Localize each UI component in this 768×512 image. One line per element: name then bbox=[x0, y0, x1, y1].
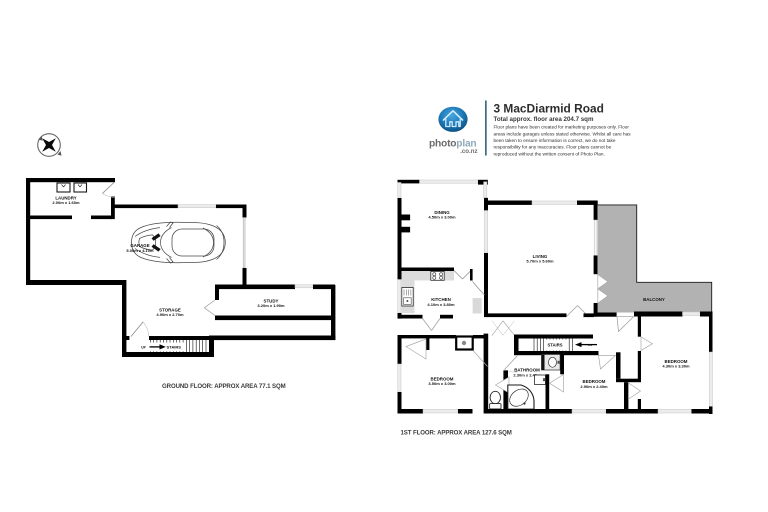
svg-text:4.30m x 3.30m: 4.30m x 3.30m bbox=[662, 364, 690, 369]
svg-text:3 MacDiarmid Road: 3 MacDiarmid Road bbox=[494, 102, 604, 116]
svg-text:STAIRS: STAIRS bbox=[167, 345, 182, 350]
svg-text:GROUND FLOOR: APPROX AREA 77.1: GROUND FLOOR: APPROX AREA 77.1 SQM bbox=[162, 383, 286, 390]
svg-text:been taken to ensure informati: been taken to ensure information is corr… bbox=[494, 138, 616, 143]
svg-text:4.50m x 3.00m: 4.50m x 3.00m bbox=[428, 215, 456, 220]
svg-text:Floor plans have been created: Floor plans have been created for market… bbox=[494, 125, 630, 130]
svg-text:5.70m x 5.60m: 5.70m x 5.60m bbox=[526, 259, 554, 264]
svg-text:BALCONY: BALCONY bbox=[643, 297, 665, 302]
svg-text:reproduced without the written: reproduced without the written consent o… bbox=[494, 151, 605, 156]
svg-text:5.00m x 4.10m: 5.00m x 4.10m bbox=[126, 248, 154, 253]
svg-text:2.90m x 2.40m: 2.90m x 2.40m bbox=[580, 384, 608, 389]
svg-text:4.10m x 3.80m: 4.10m x 3.80m bbox=[427, 302, 455, 307]
svg-text:3.50m x 3.00m: 3.50m x 3.00m bbox=[428, 381, 456, 386]
svg-text:.co.nz: .co.nz bbox=[460, 148, 477, 155]
svg-text:DN: DN bbox=[588, 343, 592, 347]
svg-text:4.90m x 2.70m: 4.90m x 2.70m bbox=[156, 312, 184, 317]
svg-text:STAIRS: STAIRS bbox=[547, 343, 562, 348]
svg-text:2.00m x 1.60m: 2.00m x 1.60m bbox=[52, 200, 80, 205]
svg-text:3.20m x 1.90m: 3.20m x 1.90m bbox=[257, 303, 285, 308]
svg-text:Total approx. floor area 204.7: Total approx. floor area 204.7 sqm bbox=[494, 116, 594, 123]
svg-text:areas include garages unless s: areas include garages unless stated othe… bbox=[494, 131, 632, 136]
svg-text:responsibility for any inaccur: responsibility for any inaccuracies. Flo… bbox=[494, 145, 612, 150]
svg-text:1ST FLOOR: APPROX AREA 127.6 S: 1ST FLOOR: APPROX AREA 127.6 SQM bbox=[401, 430, 512, 437]
